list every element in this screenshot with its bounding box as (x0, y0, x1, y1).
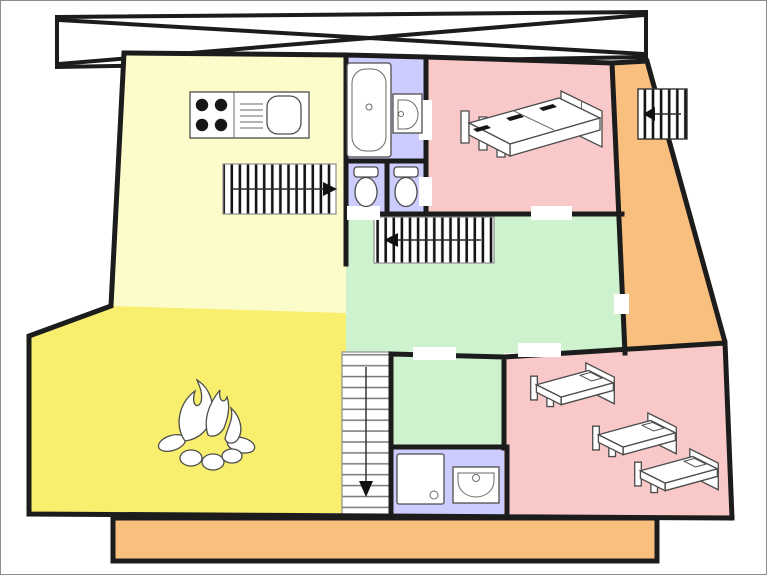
bathroom-washbasin-icon (393, 94, 422, 133)
door-hall-dormitory (518, 343, 561, 357)
landing-floor (389, 353, 504, 445)
terrace-floor (113, 518, 657, 561)
door-hall-corridor (614, 294, 629, 314)
terrace (113, 518, 657, 561)
shower-room-washbasin-icon (453, 467, 499, 503)
floor-plan-drawing (1, 1, 766, 574)
door-wc-bedroom (419, 177, 432, 206)
toilet-left-icon (354, 167, 378, 207)
floor-plan-canvas (0, 0, 767, 575)
kitchen-unit (190, 92, 309, 138)
bathtub-icon (347, 63, 391, 157)
door-wc-hall (347, 206, 380, 220)
shower-tray-icon (397, 454, 444, 504)
door-hall-landing (413, 347, 456, 360)
toilet-right-icon (394, 167, 418, 207)
door-bedroom-hall (531, 206, 572, 220)
